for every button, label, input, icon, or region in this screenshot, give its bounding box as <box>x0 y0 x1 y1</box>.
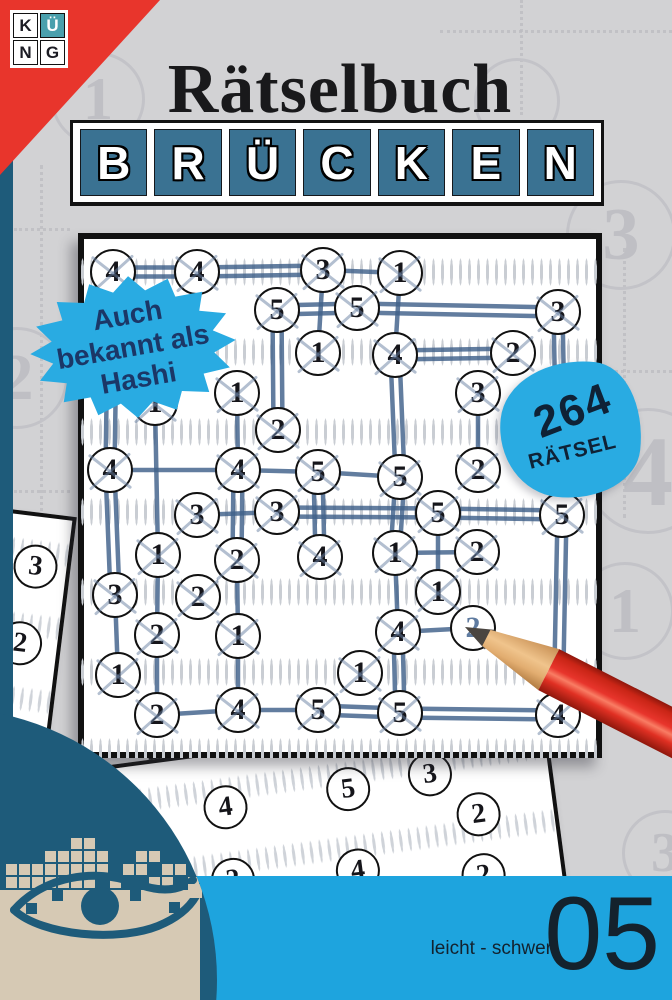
title-tile: K <box>378 129 445 196</box>
puzzle-node: 2 <box>454 790 503 839</box>
puzzle-node: 3 <box>254 489 300 535</box>
puzzle-node: 5 <box>539 492 585 538</box>
publisher-logo: K Ü N G <box>10 10 68 68</box>
title-tile: Ü <box>229 129 296 196</box>
puzzle-node: 2 <box>134 612 180 658</box>
puzzle-node: 3 <box>11 542 60 591</box>
puzzle-node: 1 <box>215 613 261 659</box>
puzzle-node: 5 <box>295 449 341 495</box>
puzzle-node: 4 <box>87 447 133 493</box>
bridge-line <box>357 312 558 316</box>
title-tile: E <box>452 129 519 196</box>
puzzle-node: 4 <box>215 447 261 493</box>
ghost-dotted-line <box>14 490 70 493</box>
logo-letter-n: N <box>13 40 38 65</box>
logo-letter-g: G <box>40 40 65 65</box>
bridge-line <box>357 304 558 308</box>
bridge-line <box>277 508 438 509</box>
puzzle-node: 3 <box>92 572 138 618</box>
puzzle-node: 2 <box>214 537 260 583</box>
puzzle-node: 1 <box>337 650 383 696</box>
puzzle-node: 4 <box>174 249 220 295</box>
logo-letter-k: K <box>13 13 38 38</box>
puzzle-node: 1 <box>295 330 341 376</box>
puzzle-node: 1 <box>135 532 181 578</box>
title-tile: N <box>527 129 594 196</box>
puzzle-node: 5 <box>295 687 341 733</box>
puzzle-node: 5 <box>254 287 300 333</box>
puzzle-node: 3 <box>455 370 501 416</box>
eye-icon <box>0 818 217 1000</box>
puzzle-node: 5 <box>334 285 380 331</box>
puzzle-node: 2 <box>255 407 301 453</box>
book-title: Rätselbuch <box>76 58 604 122</box>
puzzle-node: 4 <box>375 609 421 655</box>
title-tile: C <box>303 129 370 196</box>
logo-letter-u: Ü <box>40 13 65 38</box>
puzzle-node: 2 <box>490 330 536 376</box>
book-cover: 132413 324 4532422 Rätselbuch BRÜCKEN 44… <box>0 0 672 1000</box>
puzzle-node: 5 <box>324 764 373 813</box>
puzzle-node: 3 <box>300 247 346 293</box>
ghost-dotted-line <box>14 228 70 231</box>
puzzle-node: 2 <box>455 447 501 493</box>
puzzle-node: 3 <box>174 492 220 538</box>
puzzle-node: 2 <box>454 529 500 575</box>
puzzle-node: 5 <box>377 690 423 736</box>
puzzle-node: 2 <box>134 692 180 738</box>
puzzle-node: 2 <box>175 574 221 620</box>
title-tile: B <box>80 129 147 196</box>
puzzle-node: 1 <box>214 370 260 416</box>
volume-number: 05 <box>544 884 660 984</box>
puzzle-node: 3 <box>535 289 581 335</box>
puzzle-node: 4 <box>372 332 418 378</box>
puzzle-node: 5 <box>377 454 423 500</box>
title-tile: R <box>154 129 221 196</box>
puzzle-node: 1 <box>377 250 423 296</box>
puzzle-node: 4 <box>297 534 343 580</box>
puzzle-node: 1 <box>415 569 461 615</box>
puzzle-node: 5 <box>415 490 461 536</box>
ghost-dotted-line <box>440 30 672 33</box>
puzzle-node: 4 <box>215 687 261 733</box>
bridge-line <box>277 516 438 517</box>
puzzle-node: 1 <box>95 652 141 698</box>
difficulty-label: leicht - schwer <box>431 938 552 960</box>
puzzle-node: 1 <box>372 530 418 576</box>
title-tiles: BRÜCKEN <box>70 120 604 206</box>
